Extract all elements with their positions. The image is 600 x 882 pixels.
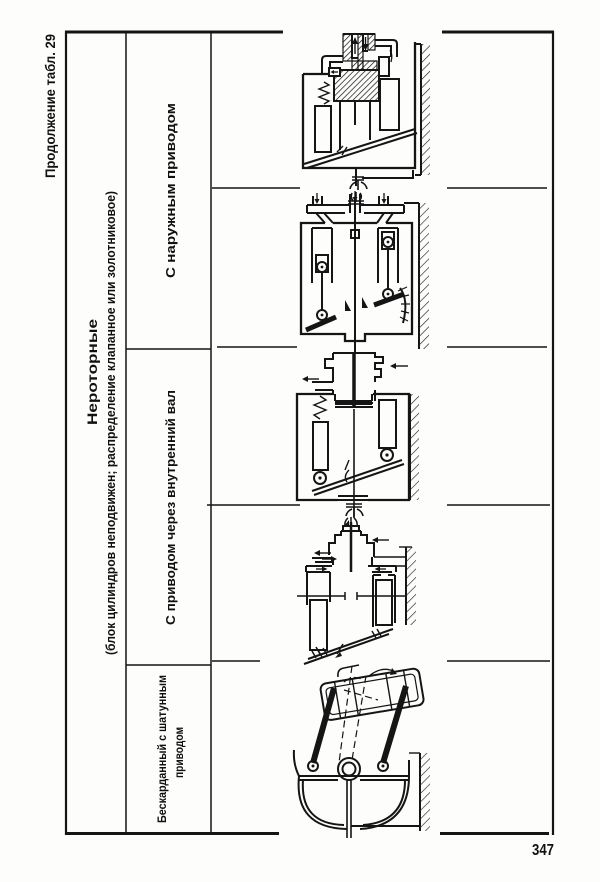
svg-text:347: 347: [532, 842, 554, 859]
svg-text:Продолжение табл. 29: Продолжение табл. 29: [42, 34, 58, 178]
svg-text:С наружным приводом: С наружным приводом: [163, 103, 178, 278]
svg-text:(блок цилиндров неподвижен; ра: (блок цилиндров неподвижен; распределени…: [104, 191, 118, 655]
svg-text:Нероторные: Нероторные: [84, 319, 100, 425]
svg-text:С приводом через внутренний ва: С приводом через внутренний вал: [164, 390, 178, 625]
svg-text:Бескарданный с шатунным: Бескарданный с шатунным: [157, 675, 169, 823]
svg-text:приводом: приводом: [174, 727, 186, 778]
